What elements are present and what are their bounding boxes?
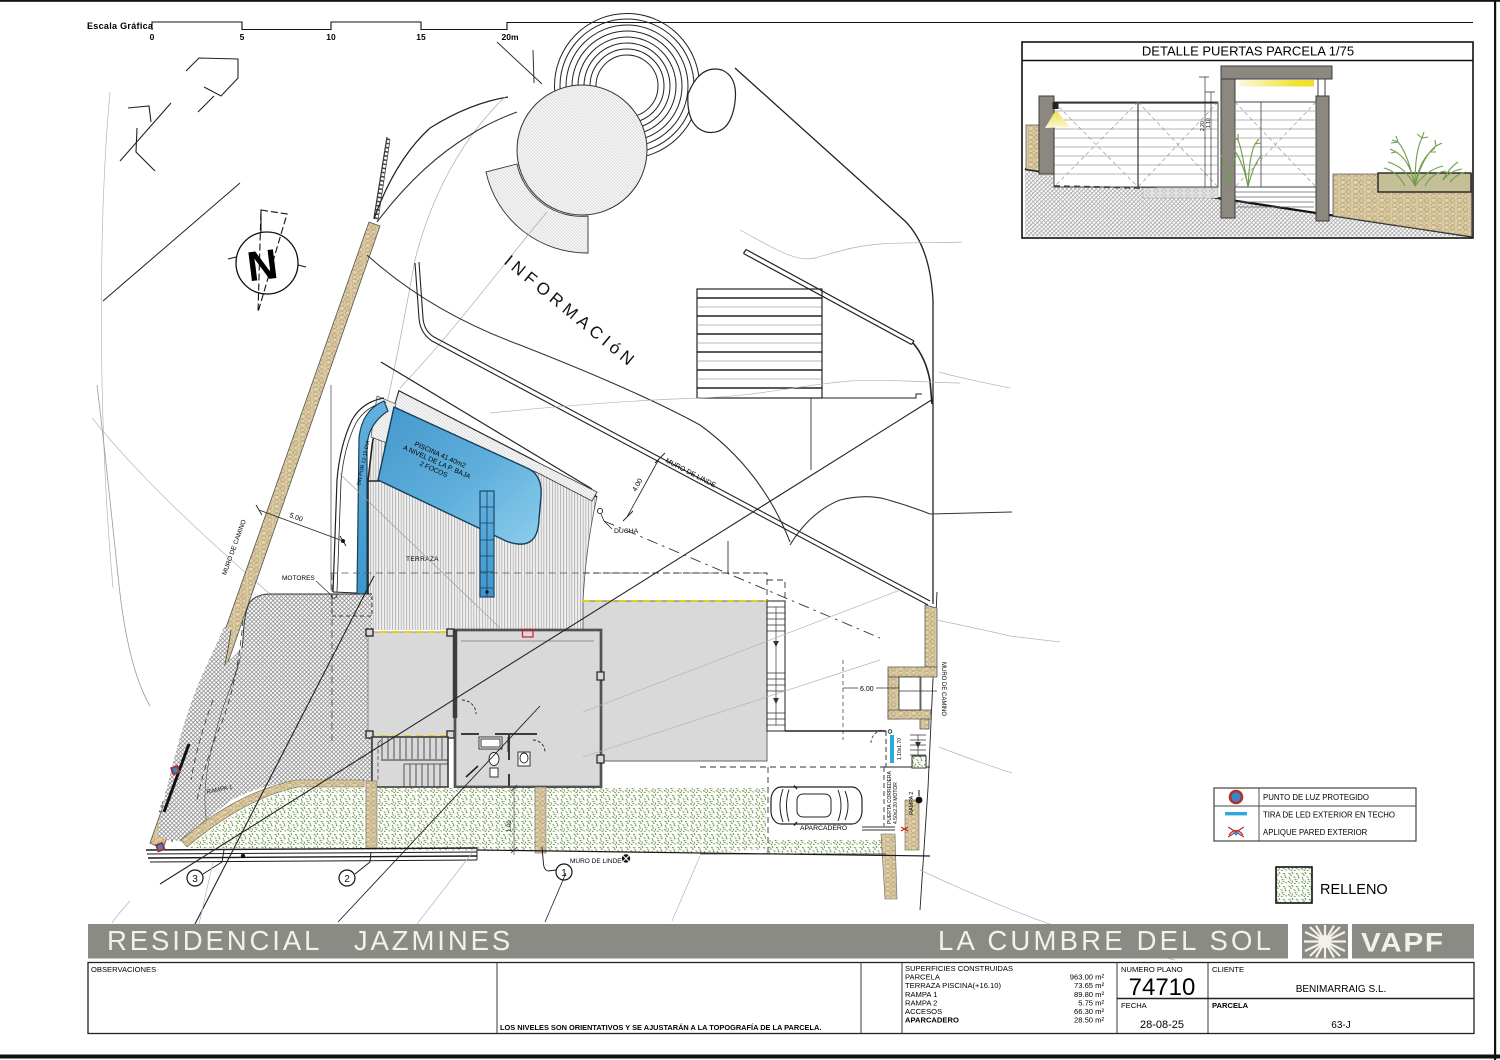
svg-text:VAPF: VAPF [1361, 928, 1445, 957]
svg-text:4.50x2.20 MOTOR: 4.50x2.20 MOTOR [893, 782, 899, 824]
svg-text:28-08-25: 28-08-25 [1140, 1019, 1184, 1031]
svg-text:Escala Gráfica: Escala Gráfica [87, 21, 154, 31]
svg-text:BENIMARRAIG S.L.: BENIMARRAIG S.L. [1296, 984, 1387, 995]
svg-text:APARCADERO: APARCADERO [800, 825, 847, 832]
svg-text:RAMPA 2: RAMPA 2 [909, 792, 915, 815]
svg-text:NUMERO PLANO: NUMERO PLANO [1121, 965, 1183, 974]
svg-text:5: 5 [240, 32, 245, 42]
svg-text:1.10: 1.10 [1206, 118, 1212, 128]
svg-text:CLIENTE: CLIENTE [1212, 965, 1244, 974]
svg-text:FECHA: FECHA [1121, 1001, 1148, 1010]
svg-text:1.10x1.70: 1.10x1.70 [897, 738, 903, 760]
svg-text:3: 3 [192, 874, 198, 885]
svg-text:63-J: 63-J [1331, 1020, 1350, 1031]
svg-text:N: N [244, 240, 280, 290]
svg-text:PUNTO DE LUZ PROTEGIDO: PUNTO DE LUZ PROTEGIDO [1263, 793, 1369, 802]
svg-text:MOTORES: MOTORES [282, 575, 315, 582]
svg-text:LA CUMBRE DEL SOL: LA CUMBRE DEL SOL [938, 925, 1274, 956]
svg-text:6.00: 6.00 [860, 686, 874, 693]
svg-text:RELLENO: RELLENO [1320, 882, 1388, 898]
svg-text:OBSERVACIONES: OBSERVACIONES [91, 965, 156, 974]
svg-text:20m: 20m [501, 32, 518, 42]
svg-text:TIRA DE LED EXTERIOR EN TECHO: TIRA DE LED EXTERIOR EN TECHO [1263, 811, 1395, 820]
svg-text:28.50 m²: 28.50 m² [1074, 1016, 1104, 1025]
svg-text:APARCADERO: APARCADERO [905, 1016, 959, 1025]
svg-text:0: 0 [150, 32, 155, 42]
svg-text:DETALLE PUERTAS PARCELA 1/75: DETALLE PUERTAS PARCELA 1/75 [1142, 44, 1354, 59]
svg-text:74710: 74710 [1129, 974, 1196, 1001]
svg-text:APLIQUE PARED EXTERIOR: APLIQUE PARED EXTERIOR [1263, 828, 1368, 837]
svg-text:MURO DE LINDE: MURO DE LINDE [570, 858, 622, 865]
svg-text:2: 2 [344, 874, 350, 885]
svg-text:PARCELA: PARCELA [1212, 1001, 1249, 1010]
svg-text:10: 10 [326, 32, 336, 42]
svg-text:LOS NIVELES SON ORIENTATIVOS Y: LOS NIVELES SON ORIENTATIVOS Y SE AJUSTA… [500, 1023, 821, 1032]
svg-text:TERRAZA: TERRAZA [406, 556, 439, 563]
svg-text:1.00: 1.00 [507, 820, 513, 832]
svg-text:RESIDENCIAL JAZMINES: RESIDENCIAL JAZMINES [107, 925, 513, 956]
svg-text:MURO DE CAMINO: MURO DE CAMINO [940, 662, 946, 716]
svg-text:15: 15 [416, 32, 426, 42]
